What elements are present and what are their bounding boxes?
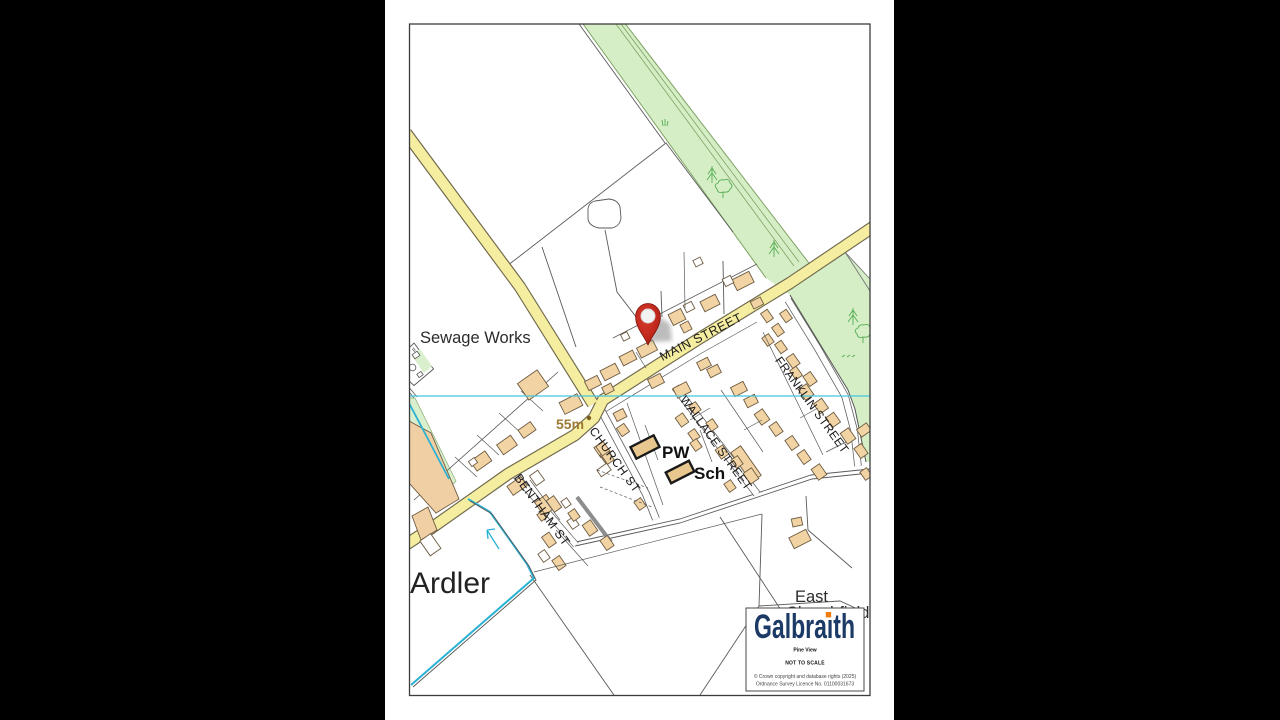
svg-text:Pine View: Pine View <box>793 648 816 654</box>
svg-text:Sewage Works: Sewage Works <box>420 329 531 347</box>
svg-text:Galbraith: Galbraith <box>754 608 855 646</box>
svg-text:PW: PW <box>662 443 690 462</box>
svg-text:Ardler: Ardler <box>410 567 490 600</box>
svg-text:Ordnance Survey Licence No. 01: Ordnance Survey Licence No. 01100031673 <box>756 682 855 688</box>
svg-text:NOT TO SCALE: NOT TO SCALE <box>785 661 825 667</box>
svg-text:Sch: Sch <box>694 464 725 483</box>
svg-text:55m: 55m <box>556 416 584 432</box>
svg-text:© Crown copyright and database: © Crown copyright and database rights (2… <box>754 673 857 680</box>
